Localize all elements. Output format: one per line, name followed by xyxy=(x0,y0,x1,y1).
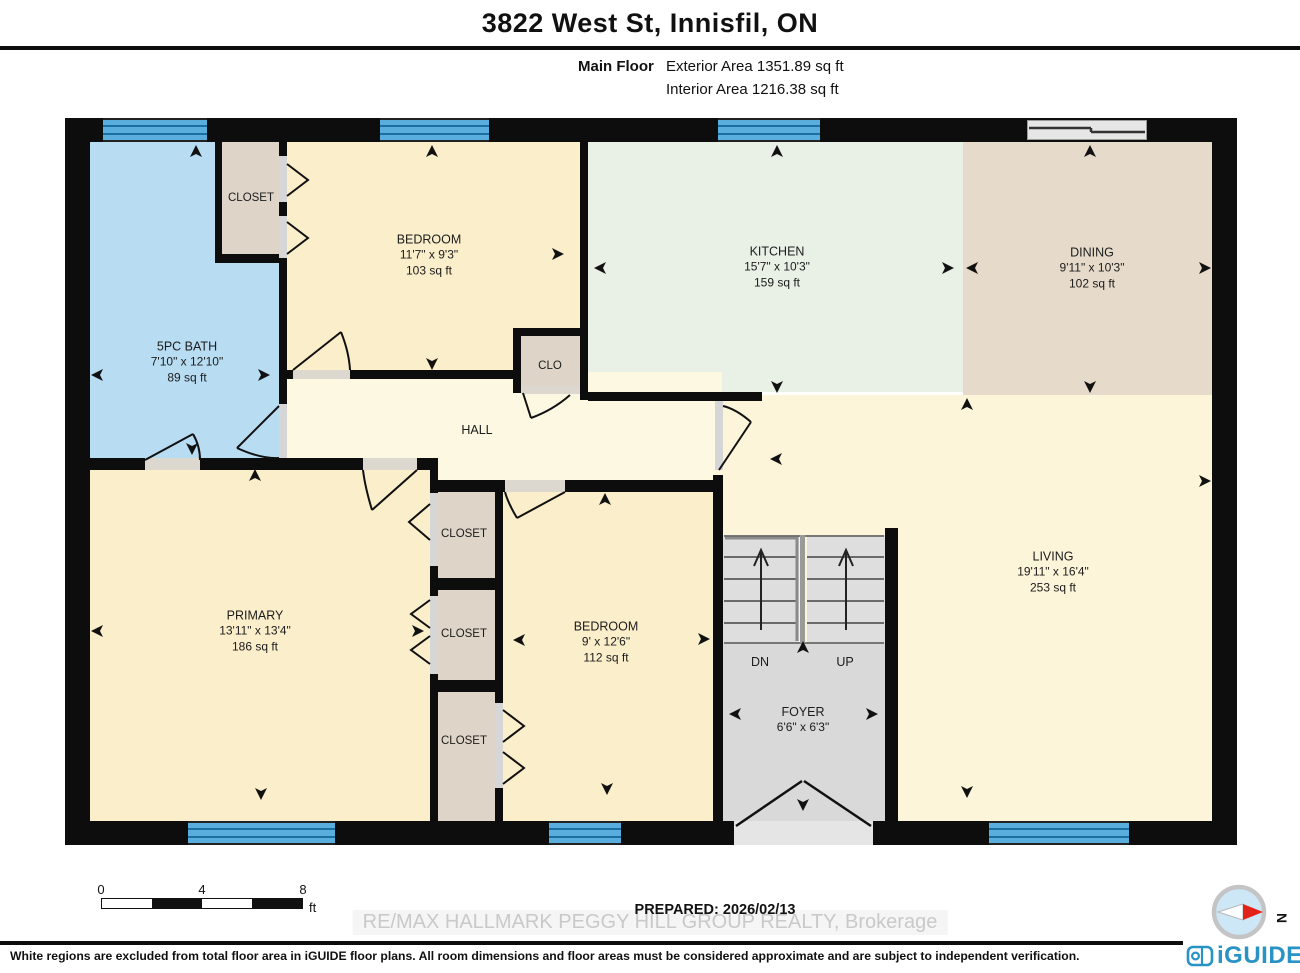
label-dn: DN xyxy=(751,655,769,669)
door-gap-closettl-2 xyxy=(279,216,287,258)
window-primary-bottom xyxy=(188,821,335,845)
door-gap-closet2 xyxy=(430,596,438,674)
door-sill-bath-primary xyxy=(145,458,200,470)
wall-hall-bottom-a xyxy=(438,480,505,492)
footer-divider xyxy=(0,941,1183,945)
label-bedroom-top: BEDROOM11'7" x 9'3"103 sq ft xyxy=(397,231,462,278)
wall-closettl-left xyxy=(215,142,222,258)
sliding-door-dining xyxy=(1027,120,1147,140)
label-bath: 5PC BATH7'10" x 12'10"89 sq ft xyxy=(151,338,224,385)
wall-closet-div2 xyxy=(438,680,495,692)
iguide-logo: iGUIDE xyxy=(1186,942,1300,970)
door-sill-hall-primary xyxy=(363,458,417,470)
door-sill-bedroom2 xyxy=(505,480,565,492)
window-kitchen-top xyxy=(718,118,820,142)
label-closet3: CLOSET xyxy=(441,735,487,747)
iguide-logo-text: iGUIDE xyxy=(1217,942,1300,970)
stairs-up-flight xyxy=(807,535,885,643)
interior-area: Interior Area 1216.38 sq ft xyxy=(666,81,839,98)
title-divider xyxy=(0,46,1300,50)
entry-opening xyxy=(734,821,873,845)
wall-kitchen-left xyxy=(580,142,588,400)
label-closet-topleft: CLOSET xyxy=(228,192,274,204)
wall-hall-bottom-b xyxy=(565,480,715,492)
scale-unit: ft xyxy=(309,900,316,915)
label-kitchen: KITCHEN15'7" x 10'3"159 sq ft xyxy=(744,243,810,290)
label-up: UP xyxy=(836,655,853,669)
window-bedroom2-bottom xyxy=(549,821,621,845)
wall-kitchen-bottom xyxy=(588,392,762,401)
window-bedroom-top xyxy=(380,118,489,142)
compass-icon: N xyxy=(1203,884,1299,940)
wall-bath-bottom-b xyxy=(200,458,363,470)
label-closet1: CLOSET xyxy=(441,528,487,540)
compass-north-label: N xyxy=(1274,913,1290,923)
label-living: LIVING19'11" x 16'4"253 sq ft xyxy=(1017,548,1089,595)
wall-closet-div1 xyxy=(438,578,495,590)
label-bedroom2: BEDROOM9' x 12'6"112 sq ft xyxy=(574,618,639,665)
wall-clo-top xyxy=(513,328,588,336)
room-closet3 xyxy=(438,692,495,821)
floorplan-page: { "header": { "title": "3822 West St, In… xyxy=(0,0,1300,973)
floor-plan: 5PC BATH7'10" x 12'10"89 sq ft CLOSET BE… xyxy=(65,118,1237,845)
stairs-down-flight xyxy=(723,535,799,643)
door-gap-closet1 xyxy=(430,493,438,566)
door-gap-closettl-1 xyxy=(279,156,287,202)
wall-bedroom2-right xyxy=(713,475,723,821)
wall-bedroomtop-bottom-b xyxy=(350,370,513,379)
scale-tick-4: 4 xyxy=(198,882,205,897)
wall-outer-left xyxy=(65,118,90,845)
scale-tick-8: 8 xyxy=(299,882,306,897)
label-primary: PRIMARY13'11" x 13'4"186 sq ft xyxy=(219,607,291,654)
scale-tick-0: 0 xyxy=(97,882,104,897)
wall-stairs-right xyxy=(885,528,898,821)
door-sill-clo xyxy=(521,386,580,394)
prepared-date: PREPARED: 2026/02/13 xyxy=(635,902,796,918)
label-closet2: CLOSET xyxy=(441,628,487,640)
wall-bath-bottom-a xyxy=(90,458,145,470)
label-clo: CLO xyxy=(538,360,562,372)
door-gap-closet3 xyxy=(495,703,503,788)
door-jamb-hall-living xyxy=(715,401,723,470)
page-title: 3822 West St, Innisfil, ON xyxy=(0,8,1300,39)
window-living-bottom xyxy=(989,821,1129,845)
window-bath-top xyxy=(103,118,207,142)
label-foyer: FOYER6'6" x 6'3" xyxy=(777,704,829,736)
iguide-camera-icon xyxy=(1186,944,1214,968)
scale-strip xyxy=(101,898,303,909)
wall-clo-left xyxy=(513,328,521,393)
label-dining: DINING9'11" x 10'3"102 sq ft xyxy=(1060,244,1125,291)
wall-outer-right xyxy=(1212,118,1237,845)
door-sill-bedroomtop xyxy=(293,370,350,379)
label-hall: HALL xyxy=(461,423,492,437)
floor-label: Main Floor xyxy=(578,58,654,75)
disclaimer-text: White regions are excluded from total fl… xyxy=(10,949,1080,963)
wall-closettl-bottom xyxy=(215,254,287,263)
door-gap-bath-hall xyxy=(279,404,287,458)
exterior-area: Exterior Area 1351.89 sq ft xyxy=(666,58,844,75)
